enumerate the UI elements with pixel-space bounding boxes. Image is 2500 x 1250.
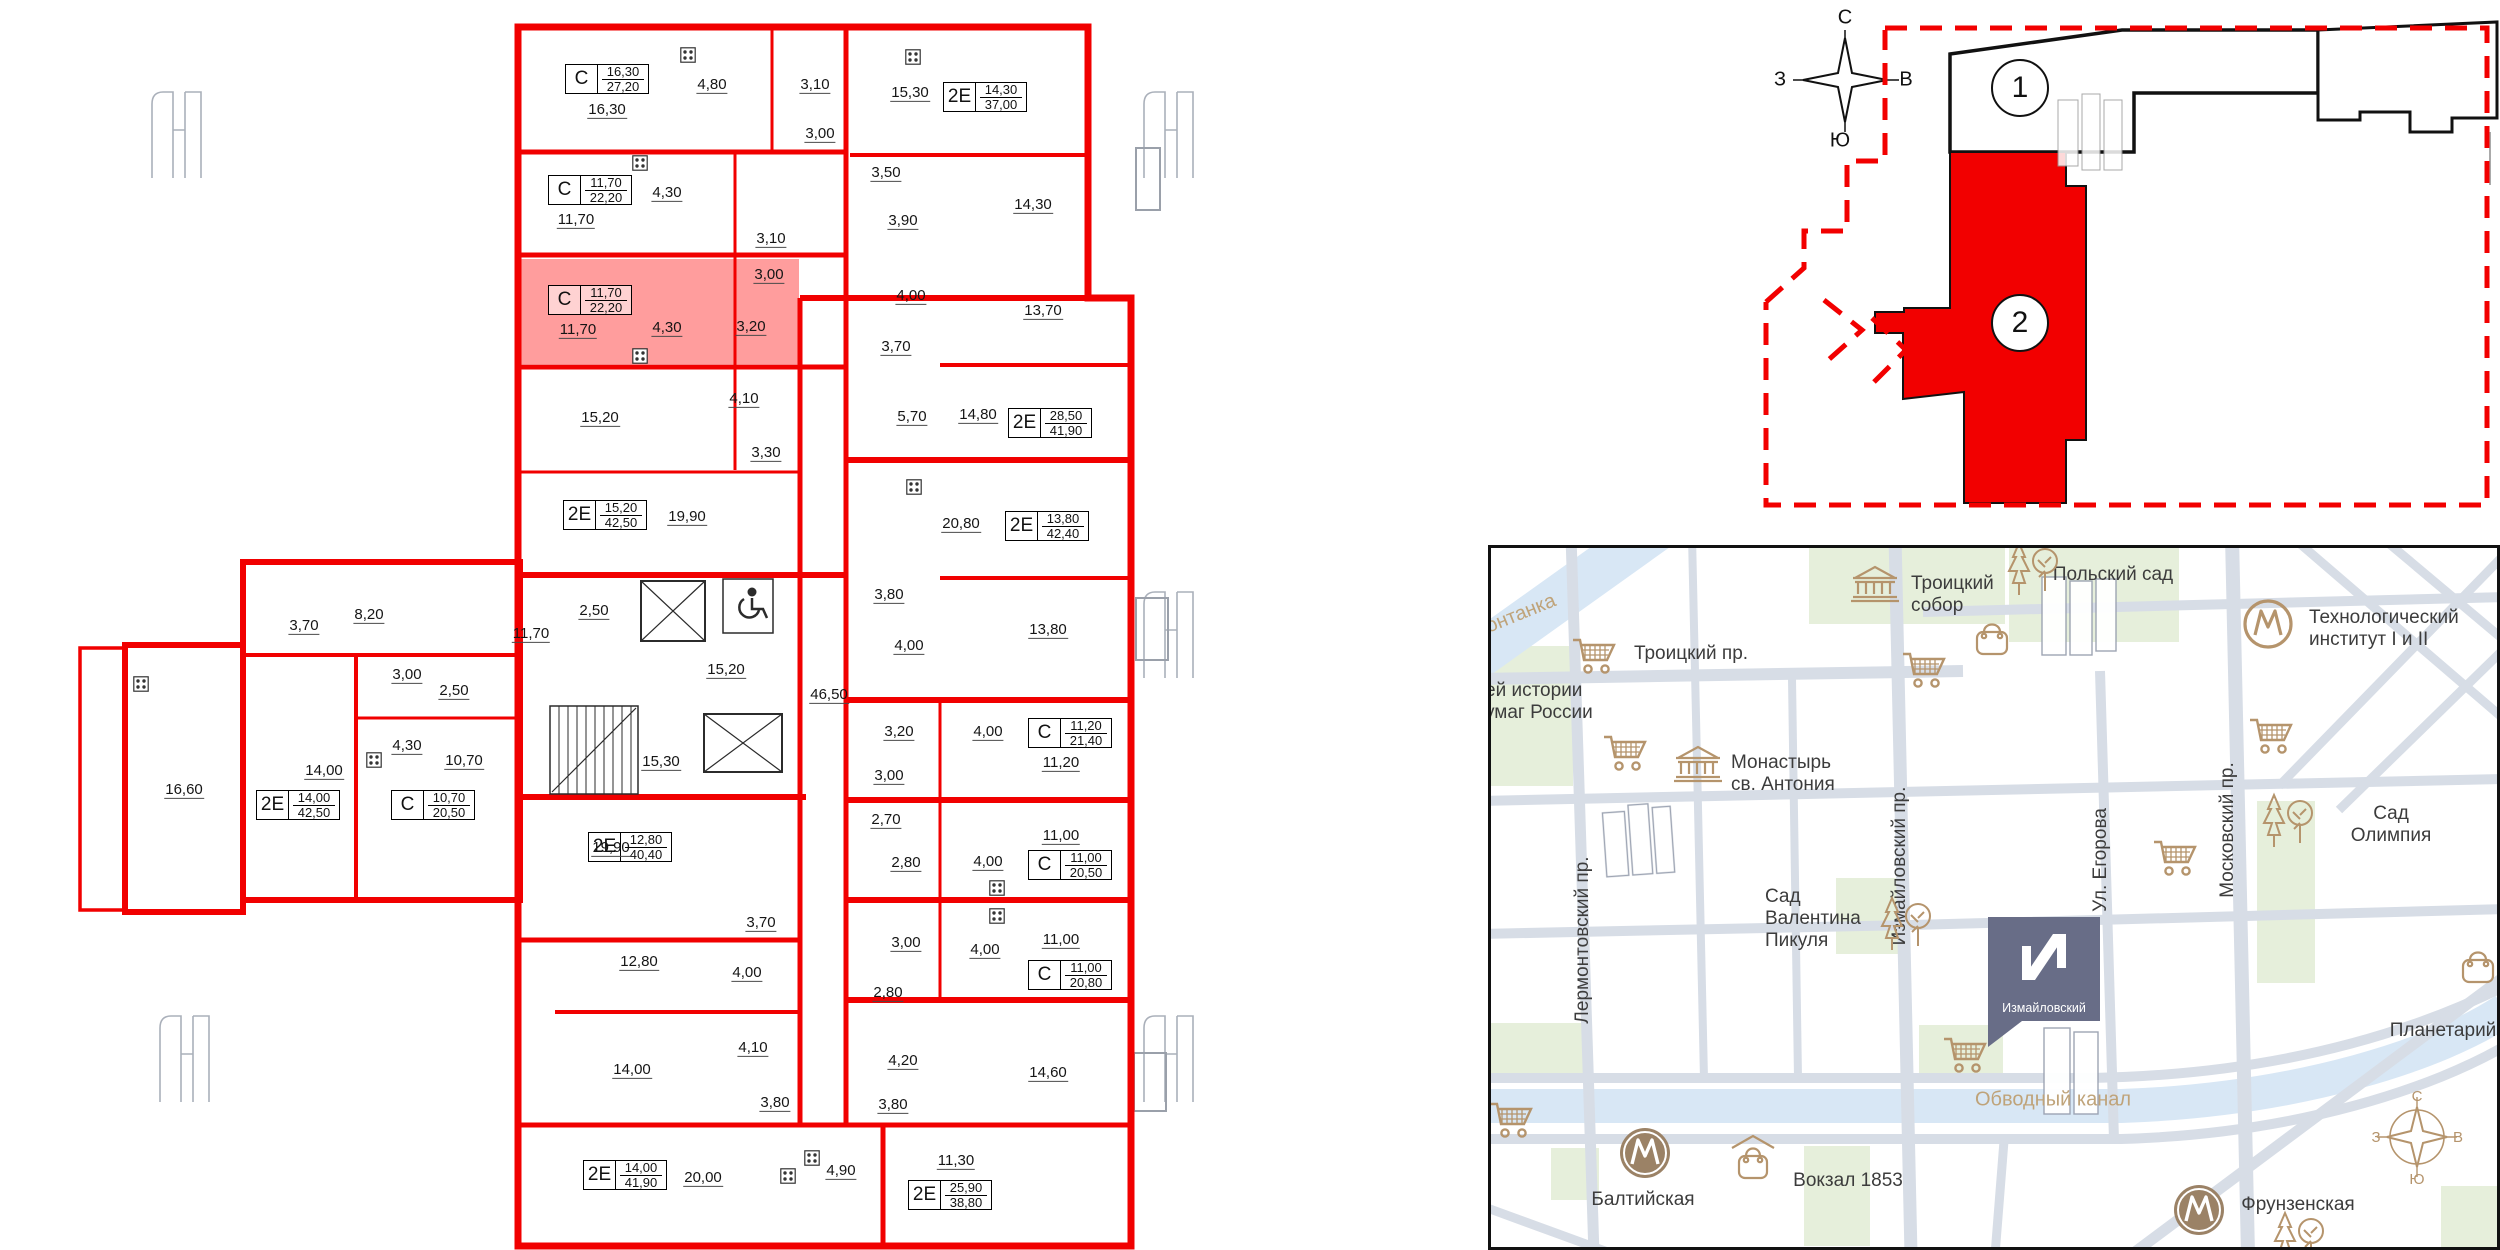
stove-icon	[680, 47, 696, 63]
site-plan	[1755, 10, 2500, 540]
apartment-tag[interactable]: С11,2021,40	[1028, 718, 1112, 748]
street-label: Московский пр.	[2217, 762, 2239, 898]
room-dimension: 2,80	[890, 854, 921, 872]
room-dimension: 3,80	[877, 1096, 908, 1114]
room-dimension: 2,50	[438, 682, 469, 700]
apartment-tag[interactable]: 2Е28,5041,90	[1008, 408, 1092, 438]
stove-icon	[905, 49, 921, 65]
room-dimension: 20,80	[941, 515, 981, 533]
apartment-tag[interactable]: С10,7020,50	[391, 790, 475, 820]
room-dimension: 2,80	[872, 984, 903, 1002]
compass-sm-icon: СЮЗВ	[2369, 1087, 2465, 1187]
building-section-2[interactable]: 2	[1991, 294, 2049, 352]
izmaylovskiy-logo-icon	[2021, 934, 2067, 980]
map-label: Обводный канал	[1975, 1088, 2131, 1111]
location-map: Измайловский онтанкаТроицкий пр.ей истор…	[1488, 545, 2500, 1250]
room-dimension: 5,70	[896, 408, 927, 426]
apartment-tag[interactable]: 2Е14,3037,00	[943, 82, 1027, 112]
room-dimension: 3,70	[745, 914, 776, 932]
map-label: Сад Олимпия	[2335, 803, 2447, 847]
room-dimension: 2,50	[578, 602, 609, 620]
room-dimension: 14,60	[1028, 1064, 1068, 1082]
project-pin: Измайловский	[1988, 917, 2100, 1021]
room-dimension: 8,20	[353, 606, 384, 624]
apartment-tag[interactable]: С11,7022,20	[548, 285, 632, 315]
room-dimension: 15,30	[890, 84, 930, 102]
cart-icon	[1901, 649, 1947, 691]
room-dimension: 3,00	[391, 666, 422, 684]
stove-icon	[804, 1150, 820, 1166]
map-label: Вокзал 1853	[1793, 1170, 1903, 1192]
stove-icon	[133, 676, 149, 692]
bag-icon	[1970, 618, 2014, 658]
svg-text:Ю: Ю	[2409, 1171, 2424, 1187]
room-dimension: 14,80	[958, 406, 998, 424]
room-dimension: 3,20	[883, 723, 914, 741]
room-dimension: 3,80	[759, 1094, 790, 1112]
metro-outline-icon	[2241, 597, 2295, 651]
cart-icon	[1602, 732, 1648, 774]
map-label: Планетарий	[2390, 1020, 2497, 1042]
room-dimension: 3,30	[750, 444, 781, 462]
pin-label: Измайловский	[1988, 1001, 2100, 1015]
street-label: Ул. Егорова	[2090, 808, 2112, 912]
compass-north-label: С	[1838, 7, 1852, 30]
stove-icon	[989, 908, 1005, 924]
cart-icon	[1571, 635, 1617, 677]
room-dimension: 4,10	[728, 390, 759, 408]
apartment-tag[interactable]: С11,0020,80	[1028, 960, 1112, 990]
trees-icon	[2005, 545, 2061, 597]
room-dimension: 16,30	[587, 101, 627, 119]
street-label: Лермонтовский пр.	[1572, 856, 1594, 1023]
room-dimension: 46,50	[809, 686, 849, 704]
stove-icon	[632, 155, 648, 171]
compass-west-label: З	[1774, 69, 1786, 92]
svg-text:В: В	[2453, 1129, 2463, 1146]
trees-icon	[2271, 1209, 2327, 1250]
room-dimension: 20,00	[683, 1169, 723, 1187]
listing-screenshot-root: С16,3027,20С11,7022,20С11,7022,202Е15,20…	[0, 0, 2500, 1250]
room-dimension: 3,70	[880, 338, 911, 356]
building-section-1[interactable]: 1	[1991, 59, 2049, 117]
map-label: Монастырь св. Антония	[1731, 752, 1835, 796]
cart-icon	[1488, 1099, 1534, 1141]
svg-text:С: С	[2412, 1088, 2423, 1105]
apartment-tag[interactable]: 2Е25,9038,80	[908, 1180, 992, 1210]
metro-filled-icon	[1618, 1126, 1672, 1180]
apartment-tag[interactable]: 2Е14,0042,50	[256, 790, 340, 820]
room-dimension: 4,30	[651, 184, 682, 202]
room-dimension: 4,10	[737, 1039, 768, 1057]
map-label: Сад Валентина Пикуля	[1765, 886, 1861, 952]
room-dimension: 15,20	[706, 661, 746, 679]
room-dimension: 4,00	[969, 941, 1000, 959]
compass-south-label: Ю	[1830, 130, 1850, 153]
classical-icon	[1849, 564, 1901, 604]
room-dimension: 4,80	[696, 76, 727, 94]
apartment-tag[interactable]: С11,0020,50	[1028, 850, 1112, 880]
room-dimension: 3,80	[873, 586, 904, 604]
trees-icon	[2260, 791, 2316, 849]
apartment-tag[interactable]: С11,7022,20	[548, 175, 632, 205]
stove-icon	[989, 880, 1005, 896]
stove-icon	[780, 1168, 796, 1184]
room-dimension: 3,00	[804, 125, 835, 143]
room-dimension: 14,30	[1013, 196, 1053, 214]
map-label: ей истории умаг России	[1488, 680, 1593, 724]
map-label: онтанка	[1488, 589, 1559, 638]
classical-icon	[1672, 744, 1724, 784]
room-dimension: 19,90	[667, 508, 707, 526]
map-overlay: Измайловский онтанкаТроицкий пр.ей истор…	[1491, 548, 2500, 1250]
room-dimension: 16,60	[164, 781, 204, 799]
room-dimension: 4,00	[972, 853, 1003, 871]
room-dimension: 4,00	[893, 637, 924, 655]
stove-icon	[632, 348, 648, 364]
map-label: Польский сад	[2053, 564, 2173, 586]
room-dimension: 11,00	[1042, 827, 1080, 845]
room-dimension: 4,90	[825, 1162, 856, 1180]
room-dimension: 14,00	[304, 762, 344, 780]
room-dimension: 3,70	[288, 617, 319, 635]
room-dimension: 11,20	[1042, 754, 1080, 772]
apartment-tag[interactable]: С16,3027,20	[565, 64, 649, 94]
room-dimension: 19,90	[591, 839, 631, 857]
apartment-tag[interactable]: 2Е15,2042,50	[563, 500, 647, 530]
stove-icon	[366, 752, 382, 768]
svg-text:З: З	[2371, 1129, 2380, 1146]
room-dimension: 11,70	[512, 625, 550, 643]
room-dimension: 3,00	[890, 934, 921, 952]
room-dimension: 4,00	[731, 964, 762, 982]
cart-icon	[1942, 1034, 1988, 1076]
room-dimension: 4,00	[895, 287, 926, 305]
map-label: Троицкий пр.	[1634, 643, 1748, 665]
stove-icon	[906, 479, 922, 495]
pin-pointer	[1988, 1021, 2022, 1047]
room-dimension: 11,30	[937, 1152, 975, 1170]
cart-icon	[2152, 837, 2198, 879]
room-dimension: 3,90	[887, 212, 918, 230]
room-dimension: 10,70	[444, 752, 484, 770]
room-dimension: 11,70	[559, 321, 597, 339]
cart-icon	[2248, 715, 2294, 757]
floor-plan-labels: С16,3027,20С11,7022,20С11,7022,202Е15,20…	[0, 0, 1250, 1250]
bag-icon	[2456, 946, 2500, 986]
room-dimension: 3,00	[873, 767, 904, 785]
room-dimension: 4,00	[972, 723, 1003, 741]
room-dimension: 12,80	[619, 953, 659, 971]
room-dimension: 3,00	[753, 266, 784, 284]
map-label: Троицкий собор	[1911, 573, 1994, 617]
room-dimension: 4,30	[651, 319, 682, 337]
room-dimension: 11,00	[1042, 931, 1080, 949]
apartment-tag[interactable]: 2Е13,8042,40	[1005, 511, 1089, 541]
room-dimension: 3,50	[870, 164, 901, 182]
room-dimension: 4,20	[887, 1052, 918, 1070]
compass-east-label: В	[1899, 69, 1912, 92]
trees-icon	[1878, 894, 1934, 952]
metro-filled-icon	[2172, 1183, 2226, 1237]
room-dimension: 3,10	[799, 76, 830, 94]
room-dimension: 4,30	[391, 737, 422, 755]
room-dimension: 3,10	[755, 230, 786, 248]
room-dimension: 11,70	[557, 211, 595, 229]
map-label: Балтийская	[1591, 1189, 1694, 1211]
room-dimension: 2,70	[870, 811, 901, 829]
floor-plan: С16,3027,20С11,7022,20С11,7022,202Е15,20…	[0, 0, 1250, 1250]
room-dimension: 15,20	[580, 409, 620, 427]
room-dimension: 3,20	[735, 318, 766, 336]
room-dimension: 13,70	[1023, 302, 1063, 320]
map-label: Технологический институт I и II	[2309, 607, 2459, 651]
room-dimension: 14,00	[612, 1061, 652, 1079]
apartment-tag[interactable]: 2Е14,0041,90	[583, 1160, 667, 1190]
room-dimension: 13,80	[1028, 621, 1068, 639]
room-dimension: 15,30	[641, 753, 681, 771]
bagroof-icon	[1729, 1134, 1777, 1182]
